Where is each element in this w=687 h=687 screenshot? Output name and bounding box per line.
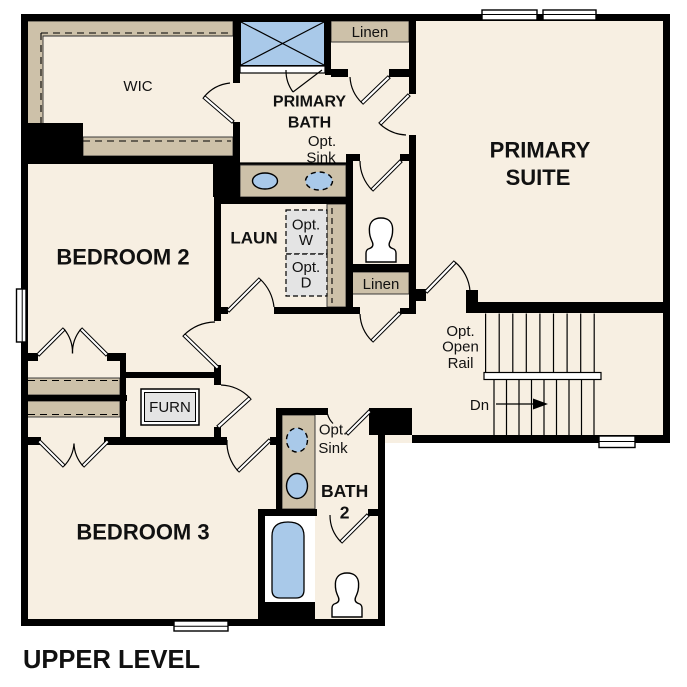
svg-text:UPPER LEVEL: UPPER LEVEL (23, 646, 200, 674)
svg-text:BEDROOM 3: BEDROOM 3 (76, 520, 209, 545)
svg-text:Opt.: Opt. (292, 217, 320, 234)
svg-text:Linen: Linen (363, 276, 400, 293)
svg-text:BEDROOM 2: BEDROOM 2 (56, 245, 189, 270)
svg-text:SUITE: SUITE (506, 165, 571, 190)
svg-text:BATH: BATH (288, 115, 331, 132)
svg-text:D: D (301, 275, 312, 292)
svg-text:Sink: Sink (318, 440, 348, 457)
svg-text:BATH: BATH (321, 481, 368, 501)
svg-text:W: W (299, 232, 314, 249)
svg-text:WIC: WIC (123, 78, 152, 95)
svg-text:Sink: Sink (306, 150, 336, 167)
svg-text:Opt.: Opt. (308, 133, 336, 150)
svg-text:Rail: Rail (448, 355, 474, 372)
svg-text:Opt.: Opt. (446, 323, 474, 340)
svg-text:LAUN: LAUN (230, 229, 277, 248)
svg-text:Dn: Dn (470, 397, 489, 414)
svg-text:Linen: Linen (352, 24, 389, 41)
svg-text:PRIMARY: PRIMARY (273, 94, 347, 111)
svg-text:2: 2 (340, 503, 350, 523)
svg-text:FURN: FURN (149, 399, 191, 416)
svg-text:PRIMARY: PRIMARY (490, 138, 591, 163)
svg-text:Opt.: Opt. (319, 422, 347, 439)
svg-text:Opt.: Opt. (292, 259, 320, 276)
svg-text:Open: Open (442, 339, 479, 356)
